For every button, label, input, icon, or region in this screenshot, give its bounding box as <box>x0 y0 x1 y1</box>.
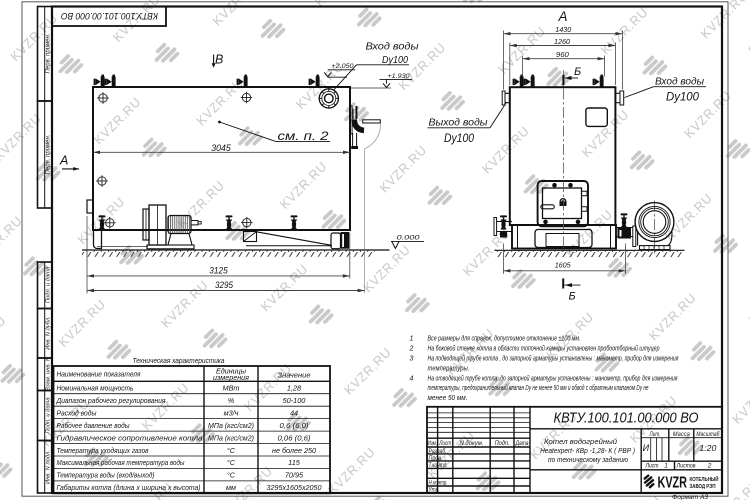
svg-text:Н.контр.: Н.контр. <box>429 481 448 487</box>
svg-text:температуры, предохранительный: температуры, предохранительный клапан Dу… <box>428 384 649 392</box>
svg-text:3295х1605х2050: 3295х1605х2050 <box>267 483 322 492</box>
svg-text:Гидравлическое сопротивление к: Гидравлическое сопротивление котла <box>57 433 203 442</box>
svg-text:температуры.: температуры. <box>428 365 470 372</box>
svg-text:Выход воды: Выход воды <box>429 116 488 128</box>
svg-text:960: 960 <box>556 50 570 59</box>
svg-text:мм: мм <box>226 483 236 492</box>
svg-text:Значение: Значение <box>278 370 311 379</box>
svg-text:МВт: МВт <box>222 384 239 393</box>
svg-text:Перв. примен.: Перв. примен. <box>46 34 52 74</box>
svg-text:Диапазон рабочего регулировани: Диапазон рабочего регулирования <box>56 396 166 405</box>
svg-text:Лист: Лист <box>645 463 659 470</box>
svg-text:3295: 3295 <box>215 280 233 290</box>
svg-text:Температура уходящих газов: Температура уходящих газов <box>57 446 149 455</box>
svg-text:КОТЕЛЬНЫЙ: КОТЕЛЬНЫЙ <box>690 475 719 483</box>
svg-text:Разраб.: Разраб. <box>429 449 447 455</box>
svg-text:Вход воды: Вход воды <box>655 76 704 88</box>
svg-text:Взам. инв. N: Взам. инв. N <box>46 356 52 391</box>
svg-text:+1.930: +1.930 <box>388 73 410 80</box>
svg-text:2: 2 <box>409 346 414 353</box>
svg-text:Heatexpert- КВр -1,28- К ( РВР: Heatexpert- КВр -1,28- К ( РВР ) <box>540 446 635 455</box>
svg-text:1,28: 1,28 <box>287 384 302 393</box>
svg-text:Листов: Листов <box>676 463 696 470</box>
svg-text:Подп. и дата: Подп. и дата <box>46 397 52 434</box>
svg-text:Б: Б <box>574 66 581 78</box>
svg-text:Инв. N подл.: Инв. N подл. <box>46 450 52 484</box>
svg-text:На боковой стенке котла в обла: На боковой стенке котла в области топочн… <box>428 345 660 353</box>
svg-text:Dy100: Dy100 <box>666 89 699 103</box>
svg-text:На отводящей трубе котла ,до з: На отводящей трубе котла ,до запорной ар… <box>428 374 678 382</box>
svg-text:Габариты котла (длина х ширина: Габариты котла (длина х ширина х высота) <box>57 483 201 492</box>
svg-text:3: 3 <box>410 356 414 363</box>
svg-text:измерения: измерения <box>213 373 249 382</box>
svg-text:Масштаб: Масштаб <box>696 432 720 438</box>
svg-text:Все размеры для справок, допус: Все размеры для справок, допустимое откл… <box>428 335 581 343</box>
svg-text:Перв. примен.: Перв. примен. <box>46 135 52 175</box>
svg-text:Инв. N дубл.: Инв. N дубл. <box>46 316 52 350</box>
svg-text:0,6 (6,0): 0,6 (6,0) <box>280 421 309 430</box>
svg-text:+2.050: +2.050 <box>332 63 354 70</box>
svg-text:1260: 1260 <box>554 37 571 46</box>
svg-text:Изм.: Изм. <box>428 441 438 447</box>
svg-text:2: 2 <box>707 463 712 470</box>
svg-text:МПа (кгс/см2): МПа (кгс/см2) <box>208 421 254 430</box>
svg-text:3045: 3045 <box>211 143 231 153</box>
svg-text:%: % <box>228 396 235 405</box>
svg-text:по техническому заданию: по техническому заданию <box>548 455 628 464</box>
svg-text:Подп.: Подп. <box>495 441 510 447</box>
svg-text:Расход воды: Расход воды <box>57 408 98 417</box>
svg-text:м3/ч: м3/ч <box>224 408 239 417</box>
svg-text:0,06 (0,6): 0,06 (0,6) <box>278 433 311 442</box>
svg-text:Номинальная мощность: Номинальная мощность <box>57 384 134 393</box>
svg-text:Пров.: Пров. <box>429 456 443 462</box>
svg-text:А: А <box>59 154 68 168</box>
svg-text:Рабочее давление воды: Рабочее давление воды <box>57 421 131 430</box>
svg-text:Лист: Лист <box>438 441 451 447</box>
svg-text:Наименование показателя: Наименование показателя <box>57 369 141 378</box>
svg-text:И: И <box>643 443 650 453</box>
svg-text:А: А <box>558 9 568 24</box>
svg-text:Т.контр.: Т.контр. <box>429 463 448 469</box>
svg-text:На подводящей трубе котла ,: На подводящей трубе котла , до запорной … <box>428 355 679 363</box>
svg-text:менее 50 мм.: менее 50 мм. <box>428 395 468 402</box>
svg-text:44: 44 <box>290 408 298 417</box>
svg-text:ЗАВОД РЭП: ЗАВОД РЭП <box>690 484 716 490</box>
svg-text:Вход воды: Вход воды <box>366 40 419 52</box>
svg-text:50-100: 50-100 <box>283 396 306 405</box>
svg-text:°С: °С <box>227 458 236 467</box>
svg-text:В: В <box>215 53 223 67</box>
svg-text:КВТУ.100.101.00.000 ВО: КВТУ.100.101.00.000 ВО <box>61 11 158 21</box>
svg-text:4: 4 <box>410 375 414 382</box>
svg-text:1: 1 <box>664 463 668 470</box>
svg-text:70/95: 70/95 <box>285 471 304 480</box>
svg-text:°С: °С <box>227 446 236 455</box>
svg-text:1430: 1430 <box>555 25 572 34</box>
svg-text:Б: Б <box>569 290 576 302</box>
svg-text:см. п. 2: см. п. 2 <box>278 131 330 143</box>
svg-text:Котел водогрейный: Котел водогрейный <box>544 437 618 446</box>
svg-text:МПа (кгс/см2): МПа (кгс/см2) <box>208 433 254 442</box>
svg-text:°С: °С <box>227 471 236 480</box>
svg-text:115: 115 <box>288 458 301 467</box>
svg-text:1605: 1605 <box>555 261 572 270</box>
svg-text:1: 1 <box>410 336 414 343</box>
svg-text:1:20: 1:20 <box>699 443 716 453</box>
svg-text:KVZR: KVZR <box>658 475 688 492</box>
svg-text:Формат А3: Формат А3 <box>672 494 708 500</box>
svg-text:Утв.: Утв. <box>428 488 440 494</box>
svg-text:Температура воды (вход/выход): Температура воды (вход/выход) <box>57 471 155 480</box>
svg-text:3125: 3125 <box>209 265 228 275</box>
svg-text:N докум.: N докум. <box>460 441 484 447</box>
svg-text:Техническая характеристика: Техническая характеристика <box>133 356 225 365</box>
svg-text:0.000: 0.000 <box>397 235 420 242</box>
svg-text:Подп. и дата: Подп. и дата <box>46 266 52 303</box>
svg-text:не более 250: не более 250 <box>272 446 316 455</box>
svg-text:Дата: Дата <box>515 441 529 447</box>
svg-text:Максимальная рабочая температу: Максимальная рабочая температура воды <box>57 458 186 467</box>
svg-text:Масса: Масса <box>673 432 691 438</box>
svg-text:Dy100: Dy100 <box>444 131 474 145</box>
svg-text:КВТУ.100.101.00.000 ВО: КВТУ.100.101.00.000 ВО <box>554 411 699 427</box>
svg-text:Лит.: Лит. <box>649 432 661 438</box>
